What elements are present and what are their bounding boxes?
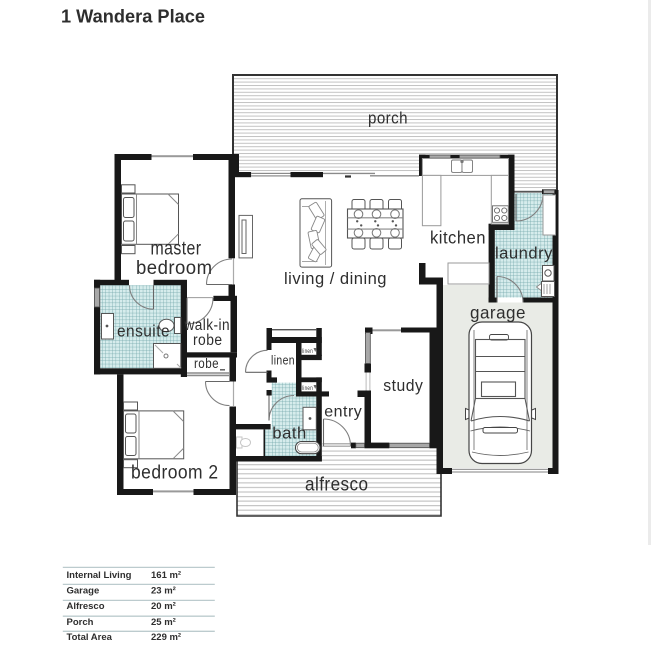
svg-text:Garage: Garage [67,586,100,597]
svg-text:living / dining: living / dining [284,269,387,288]
svg-text:ensuite: ensuite [117,322,170,340]
svg-text:alfresco: alfresco [305,474,369,495]
svg-text:robe: robe [194,356,219,371]
svg-text:entry: entry [324,403,362,420]
svg-text:linen: linen [271,353,295,368]
svg-text:robe: robe [193,332,223,349]
svg-text:bedroom: bedroom [136,257,213,279]
svg-text:Total Area: Total Area [67,632,113,643]
svg-text:1 Wandera Place: 1 Wandera Place [61,6,205,27]
svg-text:161 m²: 161 m² [151,570,181,581]
svg-text:20 m²: 20 m² [151,601,176,612]
svg-text:23 m²: 23 m² [151,586,176,597]
svg-text:bedroom 2: bedroom 2 [131,462,219,484]
svg-text:bath: bath [272,424,307,442]
svg-text:kitchen: kitchen [430,227,486,247]
svg-text:229 m²: 229 m² [151,632,181,643]
svg-text:Porch: Porch [67,617,94,628]
svg-text:study: study [383,377,423,395]
svg-text:Alfresco: Alfresco [67,601,105,612]
svg-text:25 m²: 25 m² [151,617,176,628]
svg-text:porch: porch [368,109,408,128]
svg-text:garage: garage [470,302,526,322]
svg-text:master: master [151,238,202,260]
svg-text:linen: linen [302,348,313,355]
svg-text:linen: linen [302,385,313,392]
svg-text:Internal Living: Internal Living [67,570,132,581]
svg-text:laundry: laundry [495,243,553,262]
